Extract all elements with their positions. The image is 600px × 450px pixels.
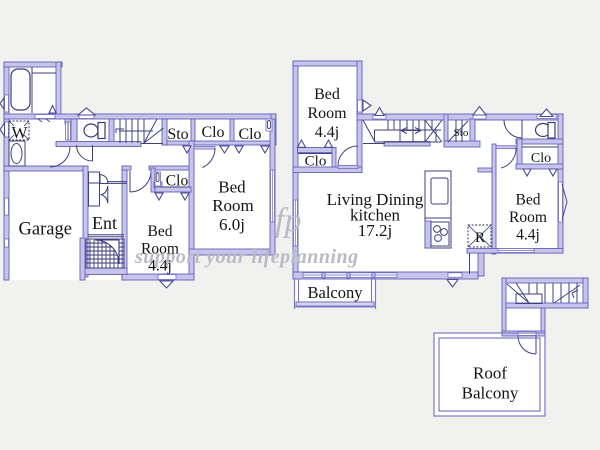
svg-text:Room: Room [212, 196, 254, 215]
svg-text:Bed: Bed [148, 223, 173, 240]
svg-text:Bed: Bed [218, 178, 246, 197]
svg-text:Bed: Bed [314, 86, 340, 103]
svg-text:R: R [475, 230, 485, 246]
svg-text:Sto: Sto [167, 126, 188, 143]
svg-text:Garage: Garage [19, 220, 72, 240]
svg-text:4.4j: 4.4j [148, 258, 172, 275]
svg-text:Balcony: Balcony [462, 384, 519, 403]
svg-text:4.4j: 4.4j [315, 124, 339, 141]
svg-text:W: W [12, 123, 29, 142]
svg-text:Bed: Bed [516, 192, 541, 209]
svg-text:Clo: Clo [238, 126, 261, 143]
svg-text:Balcony: Balcony [308, 283, 364, 302]
svg-text:Ent: Ent [92, 213, 117, 233]
svg-text:Room: Room [141, 241, 179, 258]
svg-text:Roof: Roof [473, 364, 507, 383]
svg-text:Clo: Clo [531, 151, 551, 166]
svg-text:Clo: Clo [166, 173, 189, 190]
svg-text:4.4j: 4.4j [516, 227, 540, 244]
svg-text:Clo: Clo [201, 124, 224, 141]
svg-text:Sto: Sto [454, 127, 469, 139]
svg-text:Room: Room [307, 105, 347, 122]
svg-text:Room: Room [509, 209, 547, 226]
svg-text:6.0j: 6.0j [219, 215, 245, 234]
svg-text:Clo: Clo [305, 154, 327, 170]
svg-text:fp: fp [275, 202, 301, 239]
svg-text:17.2j: 17.2j [358, 221, 392, 240]
